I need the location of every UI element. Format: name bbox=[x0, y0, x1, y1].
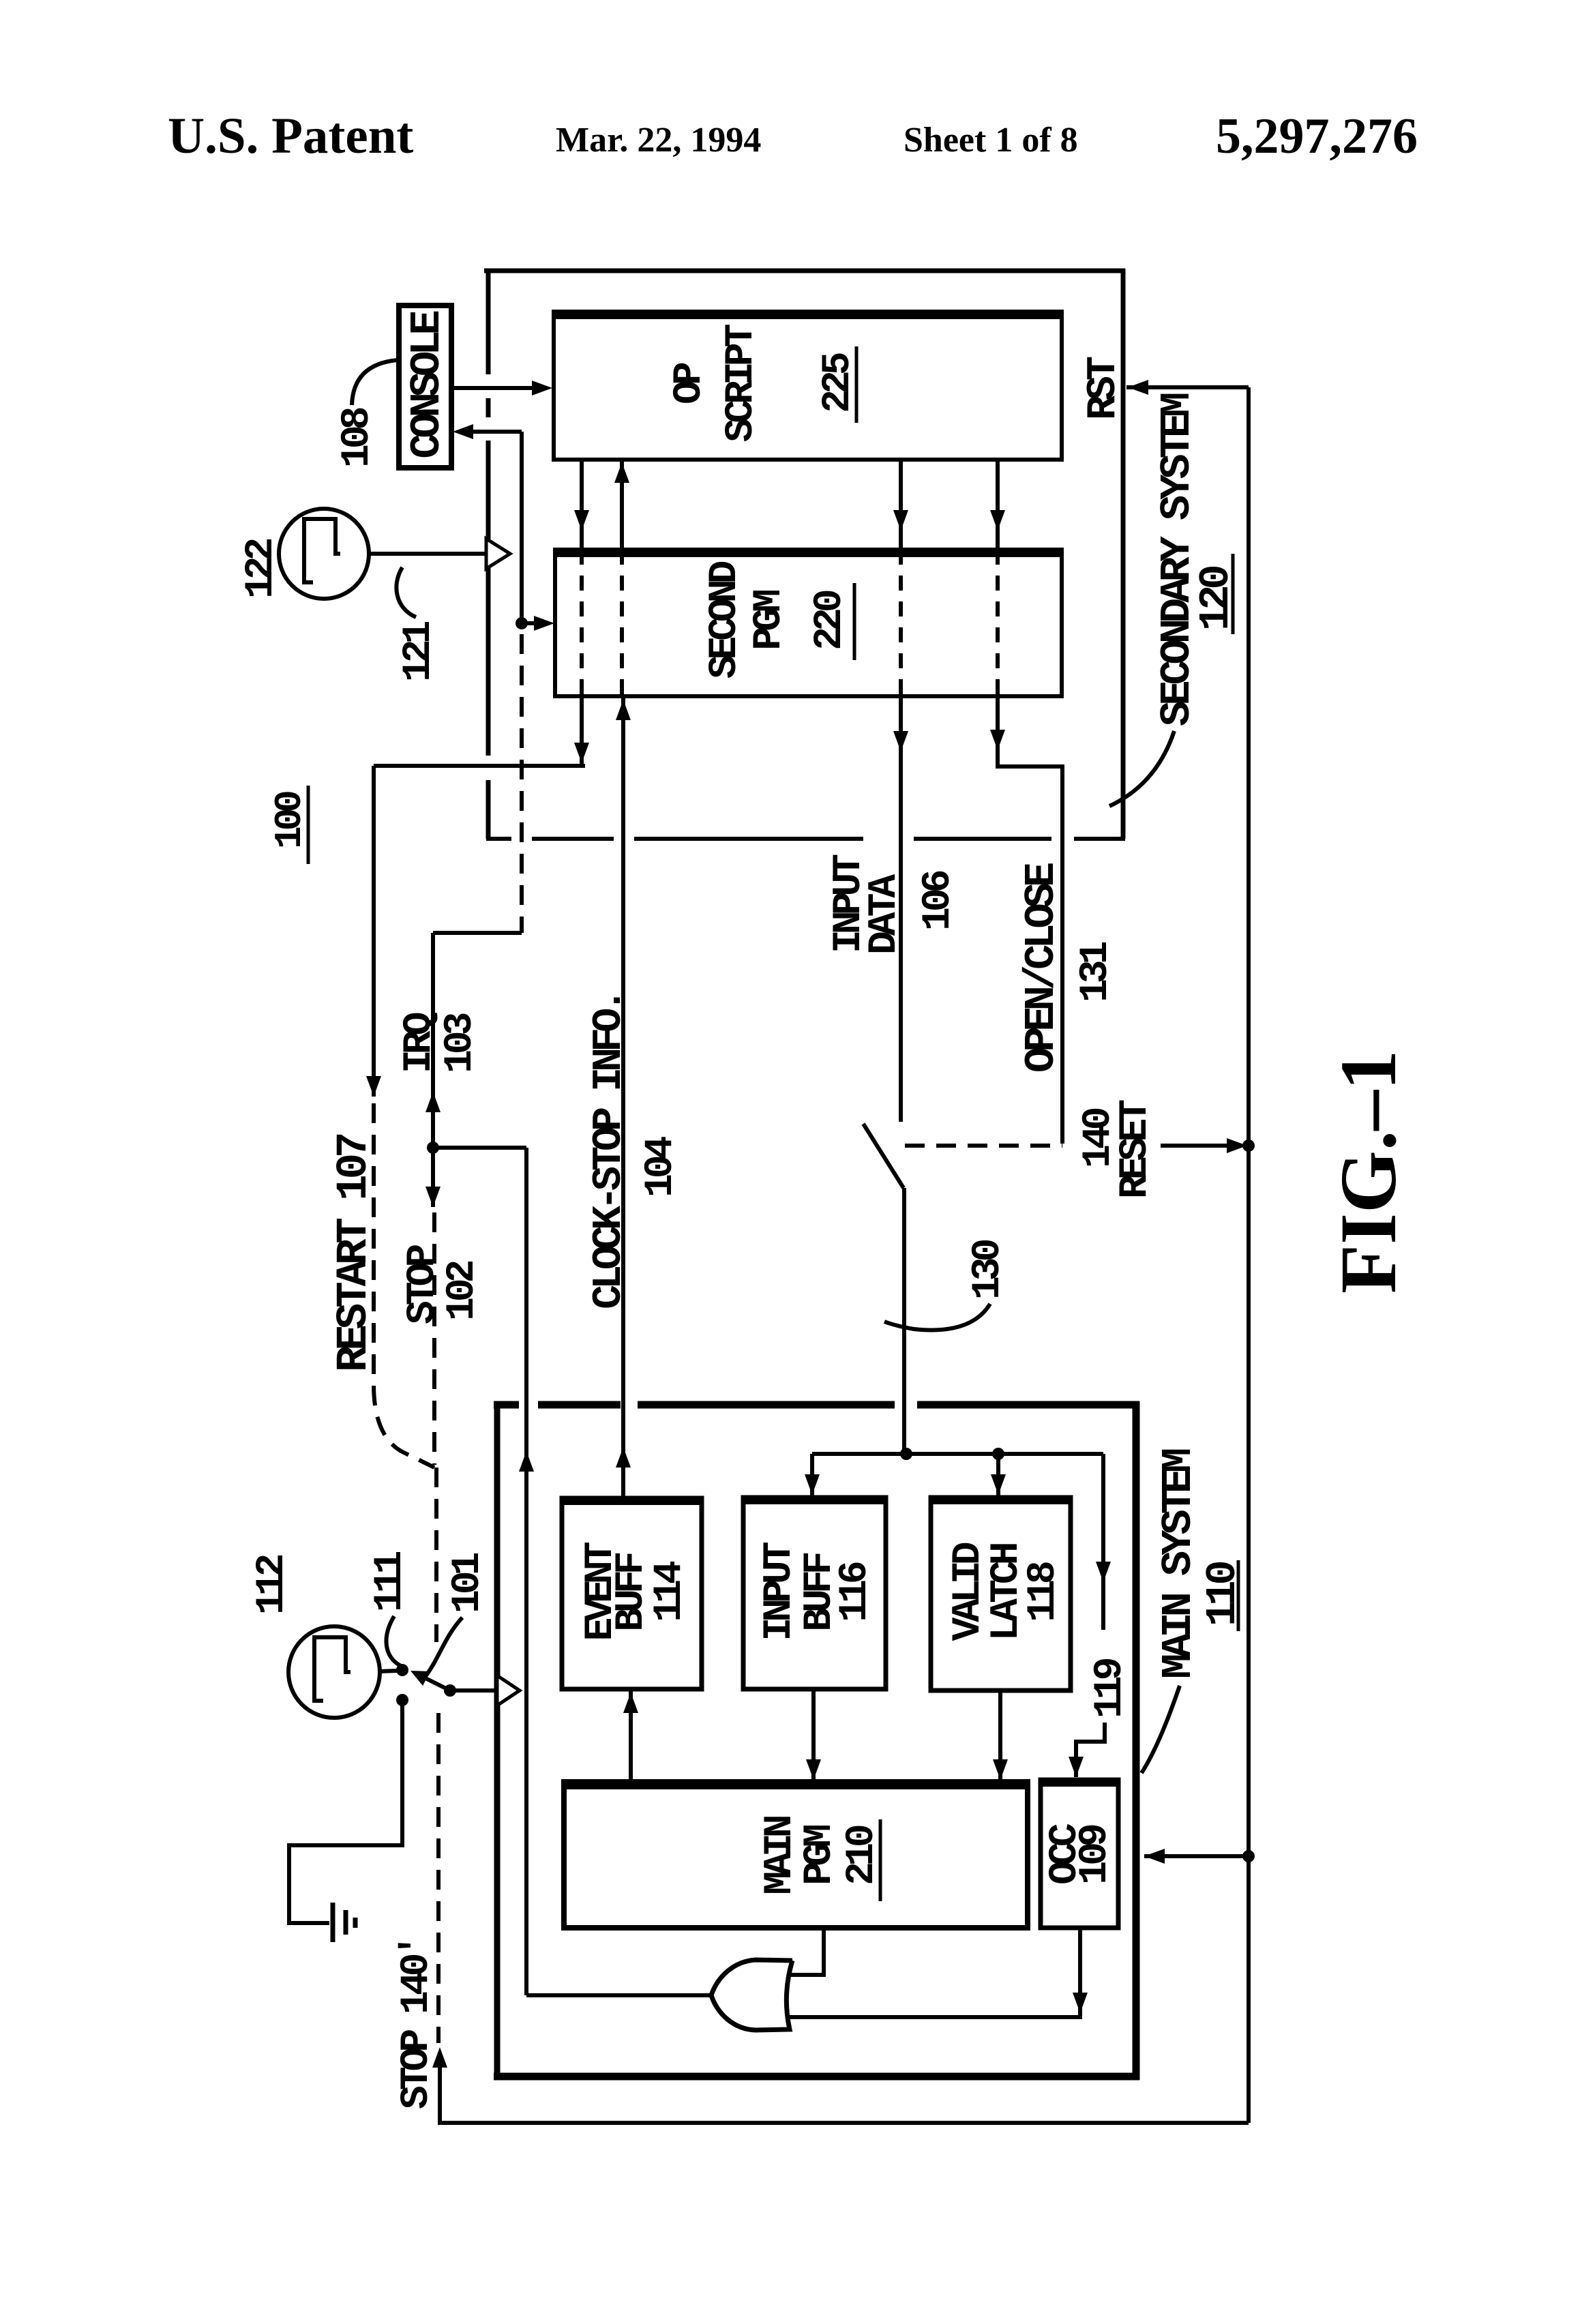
svg-text:130: 130 bbox=[966, 1240, 1011, 1300]
svg-text:118: 118 bbox=[1021, 1562, 1066, 1622]
svg-text:119: 119 bbox=[1088, 1658, 1133, 1718]
svg-text:SECOND: SECOND bbox=[703, 561, 747, 679]
svg-text:Sheet 1 of 8: Sheet 1 of 8 bbox=[904, 121, 1078, 160]
svg-text:CLOCK-STOP INFO.: CLOCK-STOP INFO. bbox=[586, 993, 633, 1309]
svg-text:225: 225 bbox=[816, 353, 861, 413]
svg-text:116: 116 bbox=[833, 1562, 878, 1622]
svg-text:OP: OP bbox=[668, 363, 712, 404]
svg-text:U.S. Patent: U.S. Patent bbox=[168, 108, 413, 164]
svg-text:103: 103 bbox=[438, 1013, 483, 1073]
svg-text:112: 112 bbox=[250, 1555, 295, 1615]
svg-text:104: 104 bbox=[639, 1136, 683, 1197]
svg-text:IRQ: IRQ bbox=[398, 1012, 442, 1073]
svg-text:114: 114 bbox=[648, 1561, 692, 1622]
svg-text:100: 100 bbox=[268, 792, 312, 849]
svg-text:PGM: PGM bbox=[798, 1826, 842, 1886]
svg-text:5,297,276: 5,297,276 bbox=[1216, 108, 1418, 164]
svg-text:210: 210 bbox=[840, 1826, 884, 1886]
svg-text:RST: RST bbox=[1081, 357, 1127, 420]
svg-text:FIG.–1: FIG.–1 bbox=[1324, 1050, 1413, 1294]
svg-text:MAIN SYSTEM: MAIN SYSTEM bbox=[1154, 1449, 1203, 1679]
svg-text:108: 108 bbox=[335, 408, 380, 468]
svg-text:111: 111 bbox=[368, 1551, 413, 1612]
svg-text:CONSOLE: CONSOLE bbox=[403, 311, 451, 458]
svg-text:131: 131 bbox=[1074, 942, 1118, 1002]
svg-text:MAIN: MAIN bbox=[758, 1817, 803, 1894]
svg-text:109: 109 bbox=[1073, 1825, 1118, 1885]
svg-text:122: 122 bbox=[239, 539, 284, 599]
svg-text:PGM: PGM bbox=[747, 591, 792, 651]
svg-text:101: 101 bbox=[446, 1553, 490, 1613]
svg-text:102: 102 bbox=[441, 1261, 485, 1321]
svg-text:220: 220 bbox=[808, 591, 852, 651]
svg-text:STOP: STOP bbox=[401, 1245, 445, 1324]
svg-text:RESTART 107: RESTART 107 bbox=[330, 1134, 379, 1372]
svg-text:RESET: RESET bbox=[1114, 1100, 1158, 1199]
svg-text:SCRIPT: SCRIPT bbox=[719, 324, 764, 442]
svg-text:STOP 140′: STOP 140′ bbox=[395, 1939, 439, 2109]
svg-text:SECONDARY SYSTEM: SECONDARY SYSTEM bbox=[1153, 393, 1202, 726]
svg-text:121: 121 bbox=[397, 621, 441, 682]
svg-text:INPUT: INPUT bbox=[758, 1542, 802, 1641]
svg-text:DATA: DATA bbox=[863, 874, 907, 955]
svg-text:106: 106 bbox=[916, 871, 961, 931]
svg-text:Mar. 22, 1994: Mar. 22, 1994 bbox=[556, 121, 761, 160]
svg-text:OPEN/CLOSE: OPEN/CLOSE bbox=[1017, 863, 1066, 1073]
